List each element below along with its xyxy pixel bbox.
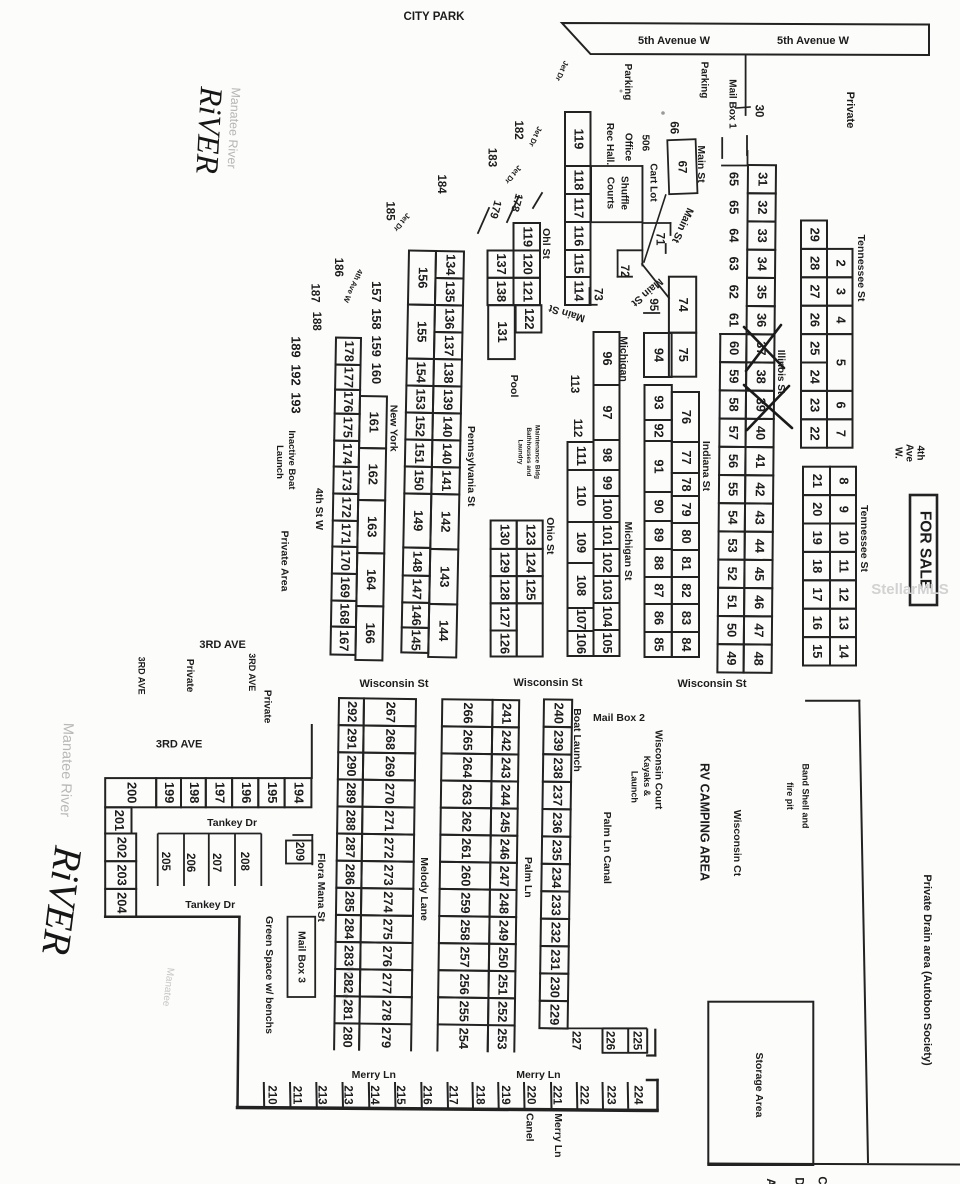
svg-text:162: 162 (366, 463, 381, 485)
svg-text:89: 89 (652, 528, 667, 542)
svg-text:131: 131 (495, 321, 510, 342)
svg-text:221: 221 (550, 1085, 562, 1105)
svg-text:61: 61 (727, 313, 742, 327)
svg-text:226: 226 (603, 1031, 615, 1050)
svg-text:28: 28 (808, 256, 823, 270)
svg-text:Manatee River: Manatee River (57, 723, 76, 818)
svg-text:79: 79 (679, 502, 694, 516)
svg-text:205: 205 (159, 852, 171, 872)
svg-text:216: 216 (420, 1085, 432, 1104)
svg-text:283: 283 (341, 945, 356, 967)
svg-text:159: 159 (369, 336, 384, 357)
svg-text:267: 267 (383, 701, 398, 723)
svg-text:263: 263 (460, 784, 475, 806)
svg-text:57: 57 (726, 426, 741, 440)
svg-text:New York: New York (388, 405, 400, 452)
svg-text:5th Avenue W: 5th Avenue W (777, 35, 850, 47)
svg-text:112: 112 (571, 419, 583, 438)
svg-text:139: 139 (441, 389, 456, 411)
svg-text:86: 86 (652, 611, 667, 625)
svg-text:64: 64 (727, 228, 742, 243)
svg-text:248: 248 (497, 893, 512, 915)
svg-text:148: 148 (410, 551, 425, 573)
svg-text:239: 239 (551, 730, 566, 752)
svg-text:Pool: Pool (508, 375, 520, 398)
svg-text:269: 269 (383, 756, 398, 778)
svg-text:229: 229 (547, 1004, 562, 1026)
svg-text:286: 286 (343, 864, 358, 886)
svg-text:135: 135 (443, 281, 458, 303)
svg-text:Office: Office (622, 133, 633, 162)
svg-text:Flora Mana St: Flora Mana St (315, 853, 327, 922)
svg-text:111: 111 (574, 446, 589, 466)
svg-text:265: 265 (460, 729, 475, 751)
svg-text:213: 213 (315, 1085, 327, 1104)
svg-text:196: 196 (239, 782, 254, 803)
svg-text:Illinois St: Illinois St (775, 350, 786, 395)
svg-text:3RD AVE: 3RD AVE (199, 639, 245, 651)
svg-text:280: 280 (340, 1026, 355, 1048)
svg-text:217: 217 (446, 1085, 458, 1104)
svg-text:122: 122 (522, 308, 537, 329)
svg-text:214: 214 (368, 1085, 380, 1105)
svg-text:65: 65 (727, 172, 742, 186)
svg-text:Launch: Launch (630, 771, 640, 803)
svg-text:194: 194 (292, 782, 307, 804)
svg-text:202: 202 (114, 837, 129, 858)
svg-text:141: 141 (439, 470, 454, 492)
svg-text:130: 130 (497, 524, 512, 545)
svg-text:40: 40 (753, 426, 768, 440)
svg-text:Ohl St: Ohl St (540, 228, 552, 259)
svg-text:76: 76 (679, 410, 694, 424)
svg-text:198: 198 (187, 782, 202, 803)
svg-text:72: 72 (618, 265, 630, 278)
svg-text:Parking: Parking (698, 62, 709, 99)
svg-text:140: 140 (440, 443, 455, 465)
svg-text:119: 119 (571, 129, 586, 150)
svg-text:220: 220 (525, 1085, 537, 1104)
svg-text:167: 167 (337, 630, 352, 652)
svg-text:152: 152 (413, 415, 428, 437)
svg-text:154: 154 (414, 361, 429, 384)
svg-text:172: 172 (339, 496, 354, 518)
svg-text:49: 49 (724, 651, 739, 665)
svg-text:236: 236 (550, 812, 565, 834)
svg-text:258: 258 (458, 919, 473, 941)
svg-text:42: 42 (753, 482, 768, 496)
svg-text:Palm Ln: Palm Ln (522, 857, 534, 898)
svg-text:142: 142 (438, 511, 453, 533)
svg-text:51: 51 (725, 595, 740, 609)
svg-text:285: 285 (342, 891, 357, 913)
svg-text:195: 195 (265, 782, 280, 803)
svg-text:291: 291 (344, 728, 359, 750)
svg-text:192: 192 (289, 364, 304, 385)
svg-text:Private: Private (184, 659, 195, 693)
svg-text:75: 75 (676, 348, 691, 362)
svg-text:6: 6 (833, 402, 848, 409)
svg-text:117: 117 (571, 198, 586, 219)
svg-text:232: 232 (548, 922, 563, 944)
svg-text:11: 11 (837, 559, 852, 573)
svg-text:213: 213 (341, 1085, 353, 1104)
svg-text:W.: W. (892, 447, 903, 459)
svg-text:201: 201 (112, 810, 127, 831)
svg-text:36: 36 (754, 313, 769, 327)
svg-text:4th: 4th (914, 446, 925, 461)
svg-text:Mail Box 2: Mail Box 2 (593, 712, 645, 724)
svg-text:3RD AVE: 3RD AVE (156, 739, 202, 751)
svg-text:46: 46 (752, 595, 767, 609)
svg-text:65: 65 (727, 200, 742, 214)
svg-text:71: 71 (653, 233, 665, 246)
svg-text:80: 80 (679, 529, 694, 543)
svg-text:168: 168 (337, 603, 352, 625)
svg-text:Palm Ln Canal: Palm Ln Canal (601, 812, 613, 884)
svg-text:178: 178 (342, 340, 357, 362)
svg-text:128: 128 (497, 579, 512, 600)
svg-text:249: 249 (496, 920, 511, 942)
svg-text:Wisconsin St: Wisconsin St (514, 677, 583, 689)
svg-text:145: 145 (408, 629, 423, 651)
svg-text:146: 146 (409, 604, 424, 626)
svg-text:2: 2 (833, 260, 848, 267)
svg-text:174: 174 (340, 443, 355, 465)
svg-text:193: 193 (289, 392, 304, 413)
svg-text:Wisconsin Court: Wisconsin Court (652, 730, 663, 810)
svg-text:98: 98 (600, 448, 615, 462)
svg-text:21: 21 (810, 474, 825, 488)
svg-text:Launch: Launch (274, 445, 285, 479)
svg-text:231: 231 (548, 949, 563, 971)
svg-text:115: 115 (571, 253, 586, 274)
svg-text:78: 78 (679, 477, 694, 491)
svg-text:264: 264 (460, 756, 475, 778)
svg-text:Merry Ln: Merry Ln (352, 1069, 396, 1081)
svg-text:Mail Box 3: Mail Box 3 (295, 931, 307, 983)
svg-text:54: 54 (725, 510, 740, 525)
svg-text:185: 185 (383, 201, 395, 221)
svg-text:282: 282 (341, 972, 356, 994)
svg-text:184: 184 (435, 175, 447, 195)
svg-text:Private: Private (262, 690, 273, 724)
svg-text:Canel: Canel (524, 1113, 536, 1142)
svg-text:fire pit: fire pit (785, 782, 795, 810)
svg-text:243: 243 (498, 757, 513, 779)
svg-text:44: 44 (752, 539, 767, 554)
svg-text:268: 268 (383, 729, 398, 751)
svg-text:143: 143 (437, 566, 452, 588)
svg-text:19: 19 (810, 531, 825, 545)
svg-text:96: 96 (600, 351, 615, 365)
svg-text:235: 235 (549, 840, 564, 862)
svg-text:140: 140 (440, 416, 455, 438)
svg-text:50: 50 (724, 623, 739, 637)
svg-text:223: 223 (605, 1085, 617, 1104)
svg-text:107: 107 (574, 609, 589, 630)
svg-text:93: 93 (652, 395, 667, 409)
svg-text:126: 126 (497, 633, 512, 654)
svg-text:281: 281 (341, 999, 356, 1021)
svg-text:116: 116 (571, 226, 586, 247)
svg-text:124: 124 (523, 552, 538, 574)
svg-text:97: 97 (600, 405, 615, 419)
svg-text:Private Drain area (Autobon So: Private Drain area (Autobon Society) (921, 874, 933, 1066)
svg-text:91: 91 (652, 459, 667, 473)
svg-text:129: 129 (497, 552, 512, 573)
svg-text:105: 105 (600, 632, 615, 653)
svg-text:275: 275 (380, 918, 395, 940)
svg-text:144: 144 (436, 620, 451, 643)
svg-text:24: 24 (808, 370, 823, 385)
svg-text:113: 113 (568, 375, 580, 394)
svg-text:274: 274 (381, 891, 396, 913)
svg-text:77: 77 (679, 450, 694, 464)
svg-text:Private: Private (844, 92, 856, 129)
svg-text:14: 14 (837, 644, 852, 659)
svg-text:147: 147 (409, 578, 424, 600)
svg-text:240: 240 (551, 703, 566, 725)
svg-text:241: 241 (499, 703, 514, 725)
svg-text:73: 73 (591, 288, 603, 301)
svg-text:271: 271 (382, 810, 397, 832)
svg-text:230: 230 (548, 977, 563, 999)
svg-text:Cart Lot: Cart Lot (647, 163, 658, 202)
svg-text:199: 199 (162, 782, 177, 803)
svg-text:255: 255 (457, 1000, 472, 1022)
svg-text:166: 166 (363, 622, 378, 644)
svg-text:187: 187 (309, 284, 321, 303)
svg-text:186: 186 (332, 258, 344, 277)
svg-text:Merry Ln: Merry Ln (516, 1069, 560, 1081)
svg-text:102: 102 (600, 552, 615, 573)
svg-text:34: 34 (755, 257, 770, 272)
svg-text:59: 59 (727, 369, 742, 383)
svg-text:251: 251 (495, 974, 510, 996)
svg-text:114: 114 (571, 281, 586, 303)
svg-text:Inactive Boat: Inactive Boat (286, 430, 297, 490)
svg-text:45: 45 (752, 567, 767, 581)
svg-text:25: 25 (808, 341, 823, 355)
svg-text:234: 234 (549, 867, 564, 889)
svg-text:247: 247 (497, 866, 512, 888)
svg-text:127: 127 (497, 606, 512, 627)
svg-text:27: 27 (808, 284, 823, 298)
svg-text:284: 284 (342, 918, 357, 940)
svg-text:120: 120 (520, 253, 535, 274)
svg-text:Green Space w/ benchs: Green Space w/ benchs (263, 916, 275, 1034)
svg-text:110: 110 (574, 486, 589, 507)
svg-text:9: 9 (837, 506, 852, 513)
svg-text:Rec Hall.: Rec Hall. (604, 123, 615, 165)
svg-text:66: 66 (667, 121, 679, 134)
svg-text:200: 200 (124, 782, 139, 803)
svg-text:Melody Lane: Melody Lane (418, 857, 430, 921)
svg-text:273: 273 (381, 864, 396, 886)
svg-text:Michigan: Michigan (618, 336, 630, 382)
svg-text:92: 92 (652, 423, 667, 437)
svg-text:Kayaks &: Kayaks & (642, 756, 652, 797)
svg-text:60: 60 (727, 341, 742, 355)
svg-text:Laundry: Laundry (516, 440, 523, 465)
svg-text:87: 87 (652, 583, 667, 597)
svg-text:173: 173 (339, 469, 354, 491)
svg-text:Michigan St: Michigan St (622, 522, 634, 581)
svg-text:3RD AVE: 3RD AVE (136, 657, 146, 695)
svg-text:261: 261 (459, 838, 474, 860)
svg-text:123: 123 (523, 524, 538, 545)
svg-text:58: 58 (726, 397, 741, 411)
svg-text:20: 20 (810, 502, 825, 516)
svg-text:RiVER: RiVER (189, 85, 230, 175)
svg-text:Tennessee St: Tennessee St (858, 505, 870, 572)
svg-text:246: 246 (497, 838, 512, 860)
svg-text:101: 101 (600, 525, 615, 546)
svg-text:Private Area: Private Area (279, 531, 291, 592)
svg-text:Tankey Dr: Tankey Dr (207, 817, 257, 829)
svg-text:55: 55 (726, 482, 741, 496)
svg-text:Main St: Main St (695, 145, 707, 183)
svg-text:22: 22 (808, 426, 823, 440)
svg-text:8: 8 (837, 477, 852, 484)
svg-text:257: 257 (457, 946, 472, 968)
svg-text:254: 254 (456, 1028, 471, 1050)
svg-text:137: 137 (494, 253, 509, 274)
svg-text:150: 150 (412, 469, 427, 491)
svg-text:188: 188 (310, 312, 322, 332)
svg-text:26: 26 (808, 313, 823, 327)
svg-text:31: 31 (755, 172, 770, 186)
svg-text:Courts: Courts (604, 177, 615, 210)
svg-text:95: 95 (647, 298, 659, 311)
svg-text:164: 164 (364, 569, 379, 591)
svg-text:292: 292 (345, 701, 360, 723)
svg-text:175: 175 (340, 416, 355, 438)
svg-text:81: 81 (679, 556, 694, 570)
svg-text:171: 171 (339, 523, 354, 545)
svg-text:84: 84 (679, 637, 694, 652)
svg-text:176: 176 (341, 391, 356, 413)
svg-text:47: 47 (752, 623, 767, 637)
svg-text:StellarMLS: StellarMLS (871, 581, 949, 598)
svg-text:23: 23 (808, 398, 823, 412)
svg-text:85: 85 (652, 637, 667, 651)
svg-text:15: 15 (810, 644, 825, 658)
svg-text:99: 99 (600, 476, 615, 490)
svg-text:Storage Area: Storage Area (753, 1053, 765, 1118)
svg-text:155: 155 (414, 321, 429, 343)
svg-text:Band Shell and: Band Shell and (801, 763, 811, 828)
svg-text:153: 153 (413, 388, 428, 410)
svg-text:206: 206 (184, 853, 196, 872)
svg-text:138: 138 (441, 362, 456, 384)
svg-text:160: 160 (369, 363, 384, 384)
svg-text:211: 211 (290, 1086, 302, 1105)
svg-text:Tankey Dr: Tankey Dr (185, 899, 235, 911)
svg-text:170: 170 (338, 549, 353, 571)
svg-text:270: 270 (382, 783, 397, 805)
svg-text:29: 29 (808, 228, 823, 242)
svg-text:189: 189 (289, 336, 304, 357)
svg-text:245: 245 (498, 811, 513, 833)
svg-text:Bathhouses and: Bathhouses and (525, 428, 532, 477)
svg-text:3: 3 (833, 288, 848, 295)
svg-text:203: 203 (114, 864, 129, 885)
svg-text:Shuffle: Shuffle (618, 176, 629, 210)
svg-text:119: 119 (520, 226, 535, 247)
svg-text:A: A (764, 1178, 776, 1184)
svg-text:5th Avenue W: 5th Avenue W (638, 35, 711, 47)
svg-text:Merry Ln: Merry Ln (552, 1113, 564, 1157)
svg-text:106: 106 (574, 633, 589, 654)
svg-text:Parking: Parking (622, 64, 633, 101)
svg-text:260: 260 (458, 865, 473, 887)
svg-text:209: 209 (293, 842, 305, 861)
svg-text:Maintenance Bldg: Maintenance Bldg (533, 425, 540, 479)
svg-text:12: 12 (837, 587, 852, 601)
svg-text:82: 82 (679, 583, 694, 597)
svg-text:Wisconsin St: Wisconsin St (678, 678, 747, 690)
svg-text:288: 288 (343, 809, 358, 831)
svg-text:10: 10 (837, 531, 852, 545)
svg-text:256: 256 (457, 973, 472, 995)
svg-text:4: 4 (833, 316, 848, 324)
svg-text:210: 210 (265, 1085, 277, 1104)
svg-text:33: 33 (755, 228, 770, 242)
svg-text:169: 169 (338, 576, 353, 598)
svg-text:D: D (792, 1177, 804, 1184)
svg-text:Tennessee St: Tennessee St (855, 235, 867, 302)
svg-text:Indiana St: Indiana St (700, 441, 712, 492)
svg-text:53: 53 (725, 538, 740, 552)
svg-text:18: 18 (810, 559, 825, 573)
svg-text:16: 16 (810, 616, 825, 630)
svg-text:136: 136 (442, 308, 457, 330)
svg-text:215: 215 (394, 1085, 406, 1105)
svg-text:Wisconsin Ct: Wisconsin Ct (731, 810, 743, 877)
svg-text:C: C (816, 1176, 828, 1184)
svg-text:118: 118 (571, 170, 586, 191)
svg-text:266: 266 (461, 702, 476, 724)
svg-text:90: 90 (652, 499, 667, 513)
svg-text:137: 137 (442, 335, 457, 357)
svg-text:262: 262 (459, 811, 474, 833)
svg-text:Pennsylvania St: Pennsylvania St (465, 426, 477, 507)
svg-text:Wisconsin St: Wisconsin St (360, 678, 429, 690)
svg-text:156: 156 (415, 267, 430, 289)
svg-text:43: 43 (752, 510, 767, 524)
svg-text:Boat Launch: Boat Launch (571, 708, 583, 772)
svg-text:52: 52 (725, 567, 740, 581)
svg-text:208: 208 (238, 852, 250, 872)
svg-text:121: 121 (520, 281, 535, 302)
svg-text:242: 242 (499, 730, 514, 752)
svg-text:237: 237 (550, 785, 565, 807)
svg-text:109: 109 (574, 532, 589, 553)
svg-text:149: 149 (411, 510, 426, 532)
svg-text:13: 13 (837, 616, 852, 630)
svg-text:227: 227 (569, 1031, 581, 1050)
svg-text:225: 225 (630, 1031, 642, 1051)
svg-text:103: 103 (600, 579, 615, 600)
svg-text:183: 183 (486, 148, 498, 167)
svg-text:4th St W: 4th St W (313, 488, 325, 530)
svg-text:74: 74 (676, 298, 691, 313)
svg-text:222: 222 (578, 1085, 590, 1104)
svg-text:157: 157 (369, 281, 384, 302)
svg-text:151: 151 (412, 442, 427, 464)
